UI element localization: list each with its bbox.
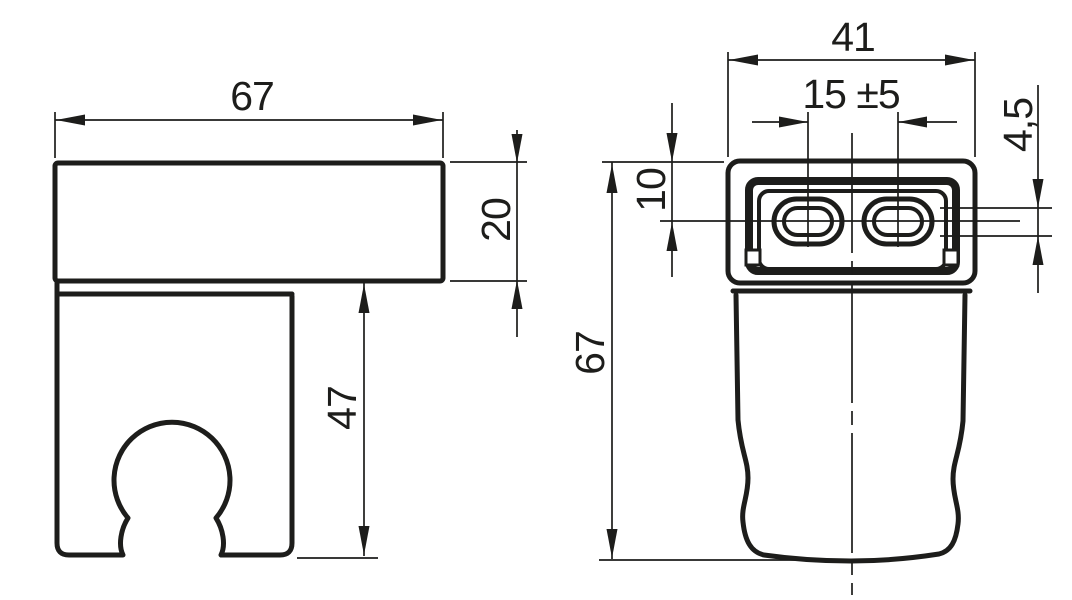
side-view-block-outline: [55, 163, 443, 281]
arrowhead: [667, 222, 678, 251]
dim-label-side-block-height: 20: [473, 198, 519, 242]
drawing-page: 67 20 47: [0, 0, 1072, 600]
front-view-body-outline: [736, 295, 965, 561]
arrowhead: [512, 134, 523, 163]
arrowhead: [512, 280, 523, 309]
side-view-part: [55, 163, 443, 555]
arrowhead: [1033, 179, 1044, 208]
arrowhead: [413, 115, 442, 126]
dim-label-side-clip-height: 47: [319, 386, 365, 430]
arrowhead: [359, 526, 370, 555]
arrowhead: [607, 529, 618, 558]
arrowhead: [898, 117, 927, 128]
dim-label-hole-spacing: 15 ±5: [802, 71, 899, 117]
arrowhead: [359, 284, 370, 313]
arrowhead: [729, 55, 758, 66]
arrowhead: [56, 115, 85, 126]
pocket-corner-notch: [944, 250, 958, 265]
arrowhead: [779, 117, 808, 128]
dim-label-front-width: 41: [831, 14, 875, 60]
dim-label-slot-height: 4,5: [995, 98, 1041, 152]
arrowhead: [667, 133, 678, 162]
arrowhead: [945, 55, 974, 66]
side-view-clip-outline: [57, 283, 292, 555]
dim-label-hole-offset: 10: [628, 168, 674, 212]
dim-label-side-width: 67: [230, 73, 274, 119]
dim-label-total-height: 67: [567, 331, 613, 375]
arrowhead: [1033, 236, 1044, 265]
front-view-dimensions: 41 15 ±5 4,5 10: [567, 14, 1052, 560]
arrowhead: [607, 164, 618, 193]
front-view-part: [660, 133, 1020, 595]
engineering-drawing: 67 20 47: [0, 0, 1072, 600]
pocket-corner-notch: [746, 250, 760, 265]
